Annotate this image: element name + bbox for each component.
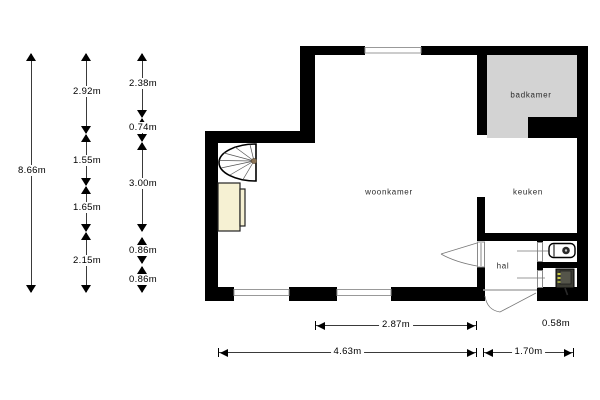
dimension-tick [218, 348, 219, 357]
wall [205, 131, 315, 143]
dimension-label: 4.63m [331, 346, 365, 357]
arrow-down-icon [137, 256, 147, 264]
dimension-label: 0.86m [127, 274, 159, 285]
wall [537, 287, 588, 301]
windows [234, 48, 421, 296]
arrow-up-icon [81, 134, 91, 142]
arrow-right-icon [467, 322, 475, 330]
dimension-segment: 1.55m [77, 134, 97, 186]
arrow-up-icon [137, 142, 147, 150]
door-swing-icon [441, 243, 477, 266]
dimension-label: 0.74m [127, 122, 159, 133]
arrow-down-icon [81, 126, 91, 134]
dimension-total-height: 8.66m [22, 53, 42, 293]
spiral-staircase-icon [219, 144, 257, 181]
arrow-up-icon [137, 266, 147, 274]
arrow-down-icon [81, 285, 91, 293]
room-label-woonkamer: woonkamer [365, 188, 413, 197]
window-icon [365, 48, 421, 54]
wall [421, 46, 588, 55]
cabinet-icon [218, 183, 240, 231]
arrow-down-icon [137, 134, 147, 142]
dimension-segment: 3.00m [133, 142, 153, 232]
room-label-hal: hal [497, 262, 510, 271]
cabinet-icon [240, 189, 245, 226]
wall [300, 46, 315, 143]
wall [205, 131, 218, 301]
dimension-segment: 0.74m [133, 118, 153, 142]
boiler-icon [549, 244, 575, 258]
dimension-label: 2.92m [71, 86, 103, 97]
dimension-tick [476, 348, 477, 357]
arrow-down-icon [137, 285, 147, 293]
dimension-label: 0.58m [542, 318, 570, 329]
doors [478, 242, 543, 290]
arrow-down-icon [137, 110, 147, 118]
room-label-keuken: keuken [513, 188, 543, 197]
dimension-segment: 2.38m [133, 53, 153, 118]
dimension-tick [573, 348, 574, 357]
wall [528, 117, 577, 138]
arrow-up-icon [81, 186, 91, 194]
furniture [218, 183, 245, 231]
arrow-down-icon [81, 224, 91, 232]
wall [537, 233, 543, 242]
window-icon [234, 290, 289, 296]
wall [577, 46, 588, 301]
wall [289, 287, 337, 301]
door-icon [538, 243, 543, 262]
arrow-up-icon [137, 237, 147, 245]
arrow-down-icon [81, 178, 91, 186]
wall [477, 233, 588, 241]
dimension-tick [476, 321, 477, 330]
dimension-label: 8.66m [16, 165, 48, 176]
dimension-label: 1.65m [71, 202, 103, 213]
dimension-tick [483, 348, 484, 357]
arrow-up-icon [137, 53, 147, 61]
dimension-segment: 2.87m [315, 318, 477, 332]
window-icon [337, 290, 391, 296]
dimension-label: 2.15m [71, 255, 103, 266]
dimension-label: 1.55m [71, 155, 103, 166]
arrow-left-icon [220, 349, 228, 357]
arrow-up-icon [26, 53, 36, 61]
wall [477, 267, 485, 301]
arrow-left-icon [317, 322, 325, 330]
room-label-badkamer: badkamer [510, 91, 551, 100]
arrow-right-icon [564, 349, 572, 357]
dimension-segment: 0.86m [133, 237, 153, 264]
dimension-segment: 0.86m [133, 266, 153, 293]
dimension-label: 0.86m [127, 245, 159, 256]
dimension-segment: 2.92m [77, 53, 97, 134]
arrow-down-icon [137, 224, 147, 232]
floorplan-page: woonkamer keuken badkamer hal 8.66m 2.92… [0, 0, 600, 400]
dimension-segment: 1.65m [77, 186, 97, 232]
dimension-tick [315, 321, 316, 330]
dimension-label: 2.87m [379, 319, 413, 330]
arrow-up-icon [81, 232, 91, 240]
dimension-label: 2.38m [127, 78, 159, 89]
arrow-left-icon [485, 349, 493, 357]
dimension-segment: 1.70m [483, 345, 574, 359]
arrow-up-icon [81, 53, 91, 61]
arrow-down-icon [26, 285, 36, 293]
dimension-segment: 4.63m [218, 345, 477, 359]
wall [540, 262, 577, 268]
wall [391, 287, 483, 301]
wall [477, 53, 487, 135]
dimension-label: 3.00m [127, 178, 159, 189]
door-swing-icon [485, 293, 536, 312]
dimension-segment: 2.15m [77, 232, 97, 293]
door-swings [441, 243, 549, 312]
door-icon [538, 271, 543, 288]
wall [205, 287, 234, 301]
dimension-label: 1.70m [512, 346, 546, 357]
arrow-right-icon [467, 349, 475, 357]
